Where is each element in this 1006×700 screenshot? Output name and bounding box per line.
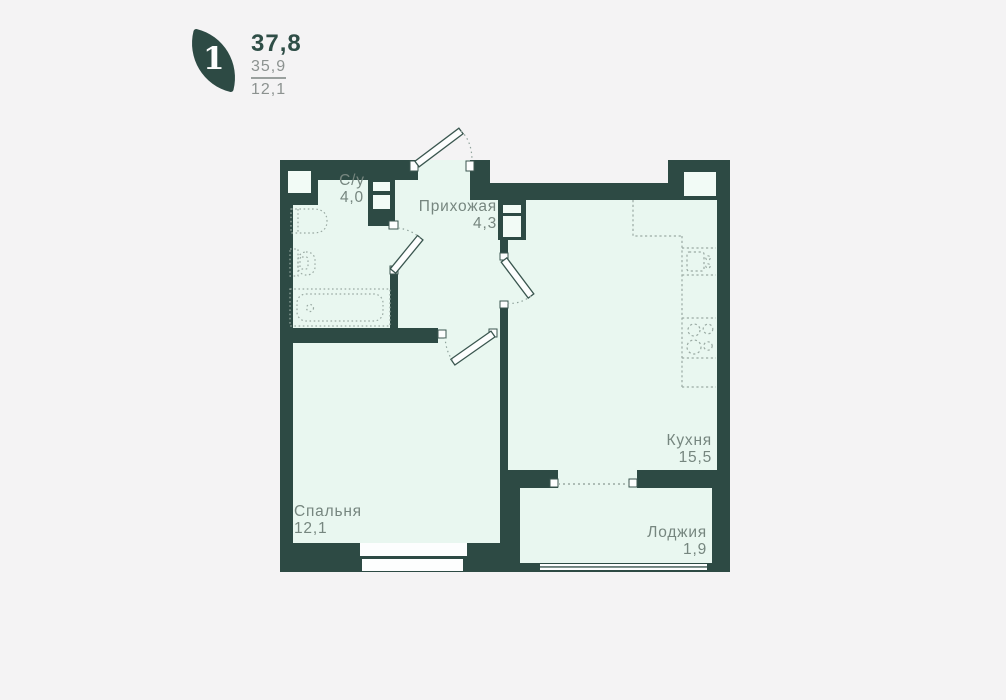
loggia-window <box>540 564 707 570</box>
floorplan-page: 1 37,8 35,9 12,1 <box>0 0 1006 700</box>
floorplan-drawing <box>0 0 1006 700</box>
room-area: 12,1 <box>294 520 404 537</box>
room-label-loggia: Лоджия 1,9 <box>607 524 707 558</box>
bedroom-window <box>360 543 467 571</box>
room-name: Кухня <box>667 432 712 449</box>
room-name: С/у <box>339 172 365 189</box>
room-area: 4,0 <box>322 189 382 206</box>
room-label-hallway: Прихожая 4,3 <box>397 198 497 232</box>
room-name: Спальня <box>294 503 362 520</box>
room-label-bedroom: Спальня 12,1 <box>294 503 404 537</box>
room-name: Лоджия <box>647 524 707 541</box>
room-name: Прихожая <box>419 198 497 215</box>
room-area: 15,5 <box>612 449 712 466</box>
room-label-bathroom: С/у 4,0 <box>322 172 382 206</box>
room-area: 4,3 <box>397 215 497 232</box>
room-label-kitchen: Кухня 15,5 <box>612 432 712 466</box>
room-area: 1,9 <box>607 541 707 558</box>
